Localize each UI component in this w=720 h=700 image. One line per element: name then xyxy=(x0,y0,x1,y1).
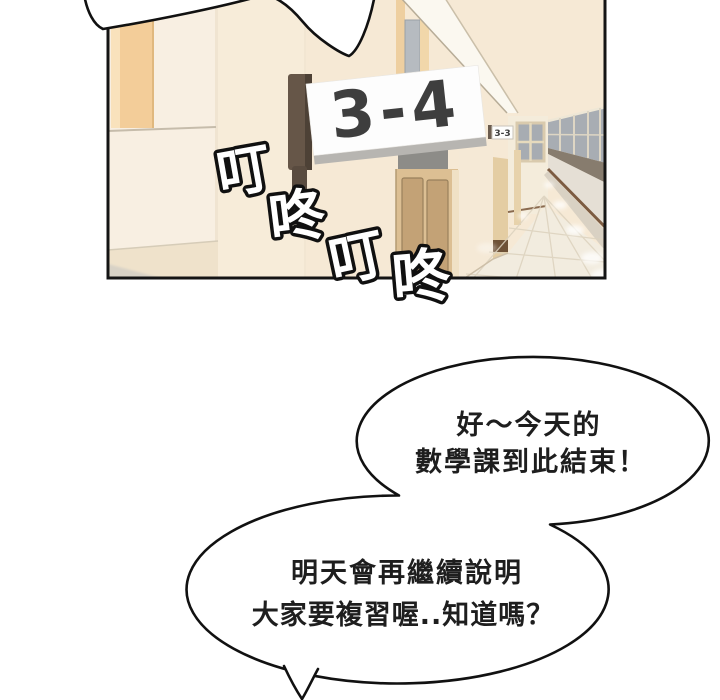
speech-bubbles xyxy=(187,357,709,684)
sfx-char-4: 咚 xyxy=(389,241,454,314)
wall-seam xyxy=(215,0,218,280)
comic-scene: 3-3 3-4 叮 咚 叮 咚 xyxy=(0,0,720,700)
speech-bubble-tail xyxy=(284,666,318,699)
far-sign-label: 3-3 xyxy=(494,129,510,139)
sfx-char-2: 咚 xyxy=(265,182,329,253)
bubble-1-line-1: 好～今天的 xyxy=(394,410,664,442)
classroom-sign-label: 3-4 xyxy=(326,67,464,155)
far-classroom-sign: 3-3 xyxy=(488,125,513,139)
bubble-2-line-1: 明天會再繼續說明 xyxy=(272,558,542,590)
bubble-1-line-2: 數學課到此結束！ xyxy=(386,447,676,479)
comic-page: 3-3 3-4 叮 咚 叮 咚 好～今天的 數學課到此結束！ 明天會再繼續說明 … xyxy=(0,0,720,700)
end-wall xyxy=(508,116,548,225)
bubble-2-line-2: 大家要複習喔..知道嗎？ xyxy=(248,600,558,632)
